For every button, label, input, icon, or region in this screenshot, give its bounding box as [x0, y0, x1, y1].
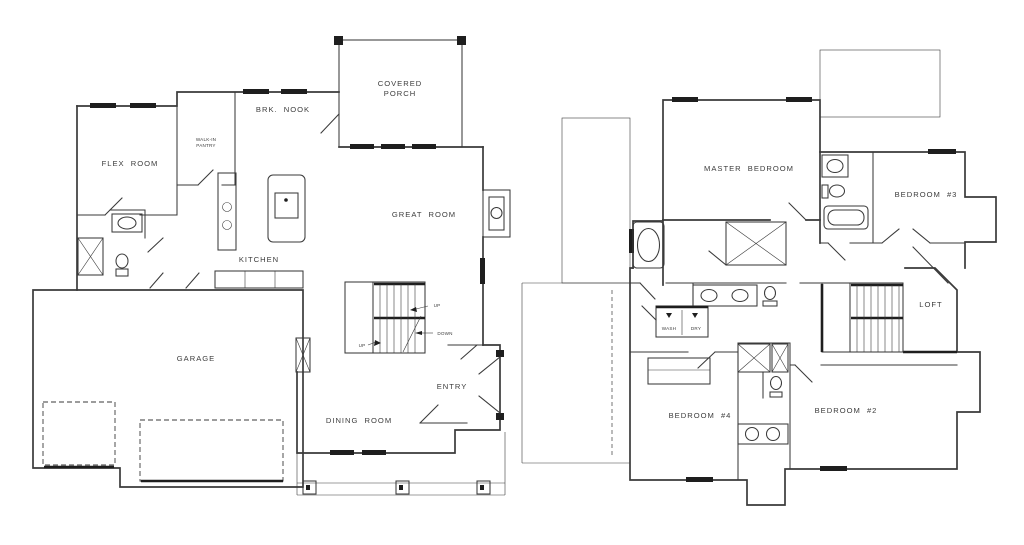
great-room-label: GREAT ROOM: [392, 210, 456, 219]
toilet-symbol: [771, 377, 782, 390]
stairs-up-label: UP: [434, 303, 441, 308]
garage-label: GARAGE: [177, 354, 216, 363]
first-floor-windows: [90, 89, 485, 455]
pantry-label-line1: WALK-IN: [196, 137, 216, 142]
base-counter: [215, 271, 303, 288]
garage-door-dashed: [43, 402, 115, 465]
toilet-symbol: [765, 287, 776, 300]
sink-symbol: [746, 428, 759, 441]
valve-symbol: [666, 313, 672, 318]
bedroom-3-label: BEDROOM #3: [895, 190, 958, 199]
stairs-up-lower-label: UP: [359, 343, 366, 348]
covered-porch-label-line1: COVERED: [378, 79, 423, 88]
window: [686, 477, 713, 482]
brk-nook-label: BRK. NOOK: [256, 105, 310, 114]
valve-symbol: [692, 313, 698, 318]
window: [820, 466, 847, 471]
front-door-leaf: [479, 396, 500, 413]
toilet-symbol: [822, 185, 828, 198]
covered-porch-label-line2: PORCH: [384, 89, 416, 98]
first-floor-interior-walls: [77, 92, 483, 423]
front-porch: [297, 432, 505, 495]
second-floor-interior-walls: [630, 152, 965, 480]
wash-label: WASH: [662, 326, 676, 331]
door-leaf: [150, 273, 163, 288]
toilet-symbol: [116, 254, 128, 268]
island-sink-symbol: [275, 193, 298, 218]
hall-bath: [822, 155, 868, 260]
door-leaf: [828, 243, 845, 260]
bedroom-2-label: BEDROOM #2: [815, 406, 878, 415]
jack-and-jill-bath: [738, 344, 788, 444]
sink-symbol: [118, 217, 136, 229]
window: [90, 103, 116, 108]
window: [928, 149, 956, 154]
fireplace: [483, 190, 510, 237]
sink-symbol: [701, 290, 717, 302]
window: [243, 89, 269, 94]
stairs-second-floor: [822, 283, 903, 352]
porch-post: [334, 36, 343, 45]
entry-label: ENTRY: [437, 382, 468, 391]
door-leaf: [709, 251, 726, 265]
sink-symbol: [767, 428, 780, 441]
floor-plan-image: FLEX ROOM WALK-IN PANTRY BRK. NOOK COVER…: [0, 0, 1024, 545]
first-floor-plan: FLEX ROOM WALK-IN PANTRY BRK. NOOK COVER…: [33, 36, 510, 495]
loft-label: LOFT: [919, 300, 942, 309]
bathtub-symbol: [824, 206, 868, 229]
pantry-label-line2: PANTRY: [196, 143, 215, 148]
master-bath: [633, 222, 786, 306]
floor-plan-drawing: FLEX ROOM WALK-IN PANTRY BRK. NOOK COVER…: [0, 0, 1024, 545]
window: [350, 144, 374, 149]
second-floor-windows: [629, 97, 956, 482]
bedroom4-closet: [648, 358, 710, 384]
porch-post: [457, 36, 466, 45]
door-leaf: [198, 170, 213, 185]
bedroom-4-label: BEDROOM #4: [669, 411, 732, 420]
window: [330, 450, 354, 455]
door-leaf: [461, 345, 477, 359]
kitchen-island: [268, 175, 305, 242]
window: [362, 450, 386, 455]
window: [281, 89, 307, 94]
toilet-symbol: [770, 392, 782, 397]
window: [381, 144, 405, 149]
kitchen-area: [150, 173, 305, 288]
garage-door-dashed: [140, 420, 283, 481]
sink-symbol: [827, 160, 843, 173]
first-floor-labels: FLEX ROOM WALK-IN PANTRY BRK. NOOK COVER…: [102, 79, 468, 425]
walk-in-pantry: [198, 170, 213, 185]
dry-label: DRY: [691, 326, 701, 331]
second-floor-plan: WASH DRY: [522, 50, 996, 505]
flex-room-label: FLEX ROOM: [102, 159, 159, 168]
door-leaf: [642, 306, 656, 320]
front-door-leaf: [479, 357, 500, 374]
master-bedroom-label: MASTER BEDROOM: [704, 164, 794, 173]
door-leaf: [640, 283, 655, 299]
roof-outlines: [522, 50, 940, 463]
door-leaf: [186, 273, 199, 288]
toilet-symbol: [763, 301, 777, 306]
toilet-symbol: [116, 269, 128, 276]
first-floor-door-leaves: [105, 114, 339, 252]
kitchen-label: KITCHEN: [239, 255, 279, 264]
dining-room-label: DINING ROOM: [326, 416, 392, 425]
window: [412, 144, 436, 149]
powder-room: [78, 214, 142, 276]
toilet-symbol: [830, 185, 845, 197]
sink-counter: [822, 155, 848, 177]
window: [786, 97, 812, 102]
double-vanity: [693, 285, 757, 306]
second-floor-labels: MASTER BEDROOM BEDROOM #3 LOFT BEDROOM #…: [669, 164, 958, 420]
window: [672, 97, 698, 102]
stairs-down-label: DOWN: [437, 331, 452, 336]
window: [130, 103, 156, 108]
sink-symbol: [732, 290, 748, 302]
door-leaf: [420, 405, 438, 423]
first-floor-exterior-walls: [33, 92, 500, 487]
window: [480, 258, 485, 284]
laundry-closet: WASH DRY: [642, 306, 708, 337]
